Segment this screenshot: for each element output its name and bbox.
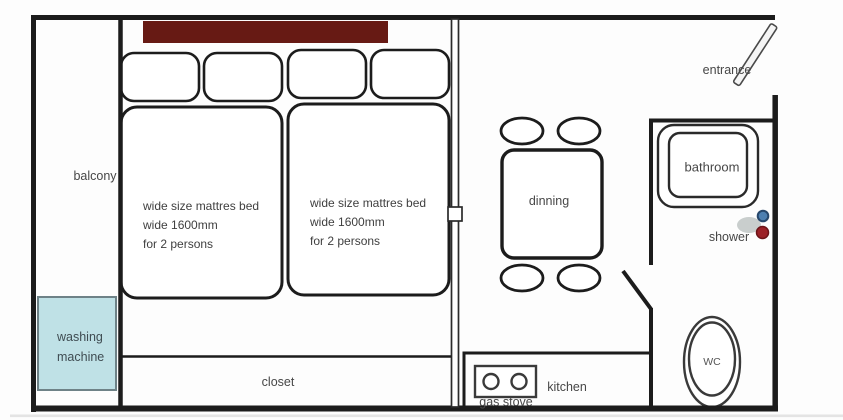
shower-cold-knob [758,211,769,222]
pillow [204,53,282,101]
balcony-label: balcony [73,170,116,183]
bathroom-label: bathroom [685,161,740,174]
shadow-line [10,415,843,418]
dining-chair [501,265,543,291]
dining-chair [558,265,600,291]
bed-left-label: wide size mattres bed wide 1600mm for 2 … [143,197,259,254]
pillow [371,50,449,98]
dining-chair [501,118,543,144]
dining-chair [558,118,600,144]
shower-hot-knob [757,227,769,239]
washing-machine-label: washing machine [57,327,104,367]
bed-right-line2: wide 1600mm [310,213,426,232]
bed-headboard [143,21,388,43]
wc-label: WC [703,357,721,368]
bed-left-line3: for 2 persons [143,235,259,254]
stove-burner [484,374,499,389]
entrance-label: entrance [703,64,752,77]
washing-machine-label-line1: washing [57,327,104,347]
bed-left-line1: wide size mattres bed [143,197,259,216]
bed-right-label: wide size mattres bed wide 1600mm for 2 … [310,194,426,251]
wc-door-leaf [623,271,651,309]
pillow [288,50,366,98]
kitchen-label: kitchen [547,381,587,394]
bed-right-line1: wide size mattres bed [310,194,426,213]
stove-burner [512,374,527,389]
washing-machine-label-line2: machine [57,347,104,367]
partition-notch [448,207,462,221]
gas-stove-label: gas stove [479,396,533,409]
dining-label: dinning [529,195,569,208]
bed-left-line2: wide 1600mm [143,216,259,235]
closet-label: closet [262,376,295,389]
floor-plan: balcony washing machine wide size mattre… [0,0,843,420]
bed-right-line3: for 2 persons [310,232,426,251]
shower-label: shower [709,231,749,244]
pillow [121,53,199,101]
